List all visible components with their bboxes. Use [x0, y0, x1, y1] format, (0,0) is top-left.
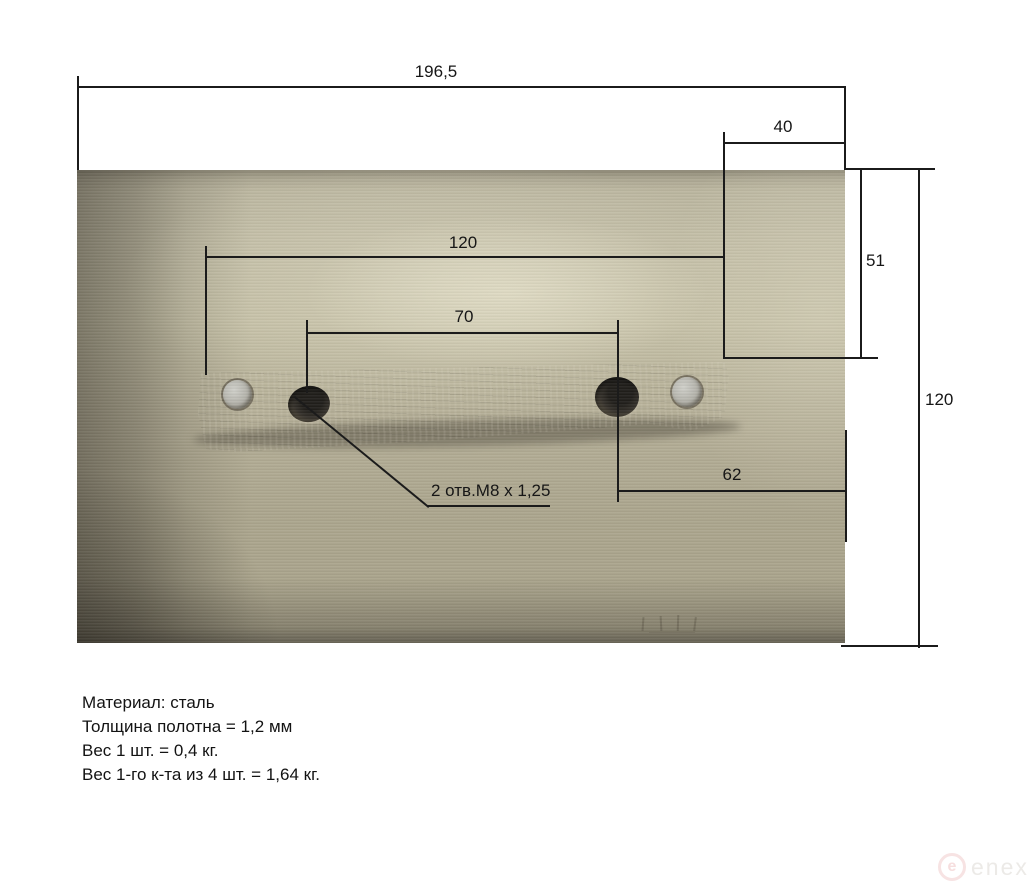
enex-logo-letter: e: [948, 859, 957, 875]
note-weight-single: Вес 1 шт. = 0,4 кг.: [82, 739, 320, 763]
left-rivet: [223, 380, 252, 409]
drawing-canvas: 196,5 40 51 120 120 70 62 2 отв.М8 х 1,2…: [0, 0, 1032, 893]
dim-line-height-51: [860, 170, 862, 359]
scratch-mark: [660, 616, 663, 631]
watermark-text: enex: [971, 854, 1029, 881]
ext-line-holes-70-left: [306, 320, 308, 393]
ext-line-right-top: [844, 86, 846, 170]
ext-line-holes-70-right: [617, 320, 619, 502]
ext-tick-120-bottom: [841, 645, 938, 647]
dim-line-span-120: [205, 256, 725, 258]
ext-line-left: [77, 76, 79, 170]
dim-label-holes-70: 70: [444, 307, 484, 326]
watermark: e enex: [938, 853, 1029, 881]
scratch-mark: [649, 632, 695, 633]
dim-label-height-120: 120: [925, 390, 969, 409]
dim-label-offset-62: 62: [712, 465, 752, 484]
dim-label-span-120: 120: [441, 233, 485, 252]
note-thickness: Толщина полотна = 1,2 мм: [82, 715, 320, 739]
ext-tick-top-right: [845, 168, 935, 170]
scratch-mark: [677, 615, 680, 631]
note-material: Материал: сталь: [82, 691, 320, 715]
dim-label-overall-width: 196,5: [400, 62, 472, 81]
dim-label-offset-40: 40: [763, 117, 803, 136]
enex-logo-icon: e: [938, 853, 966, 881]
right-rivet: [672, 377, 702, 407]
dim-line-offset-62: [617, 490, 847, 492]
ext-line-offset-40-left: [723, 132, 725, 359]
notes-block: Материал: сталь Толщина полотна = 1,2 мм…: [82, 691, 320, 787]
note-weight-set: Вес 1-го к-та из 4 шт. = 1,64 кг.: [82, 763, 320, 787]
scratch-mark: [642, 617, 645, 631]
leader-line-horizontal: [427, 505, 550, 507]
ext-line-span-120-left: [205, 246, 207, 375]
dim-label-height-51: 51: [866, 251, 900, 270]
ext-line-offset-62-right: [845, 430, 847, 542]
dim-line-overall-width: [77, 86, 846, 88]
dim-line-offset-40: [723, 142, 846, 144]
scratch-mark: [693, 617, 697, 631]
dim-line-height-120: [918, 170, 920, 648]
holes-note-label: 2 отв.М8 х 1,25: [431, 481, 550, 500]
ext-tick-51-bottom: [723, 357, 878, 359]
dim-line-holes-70: [306, 332, 619, 334]
